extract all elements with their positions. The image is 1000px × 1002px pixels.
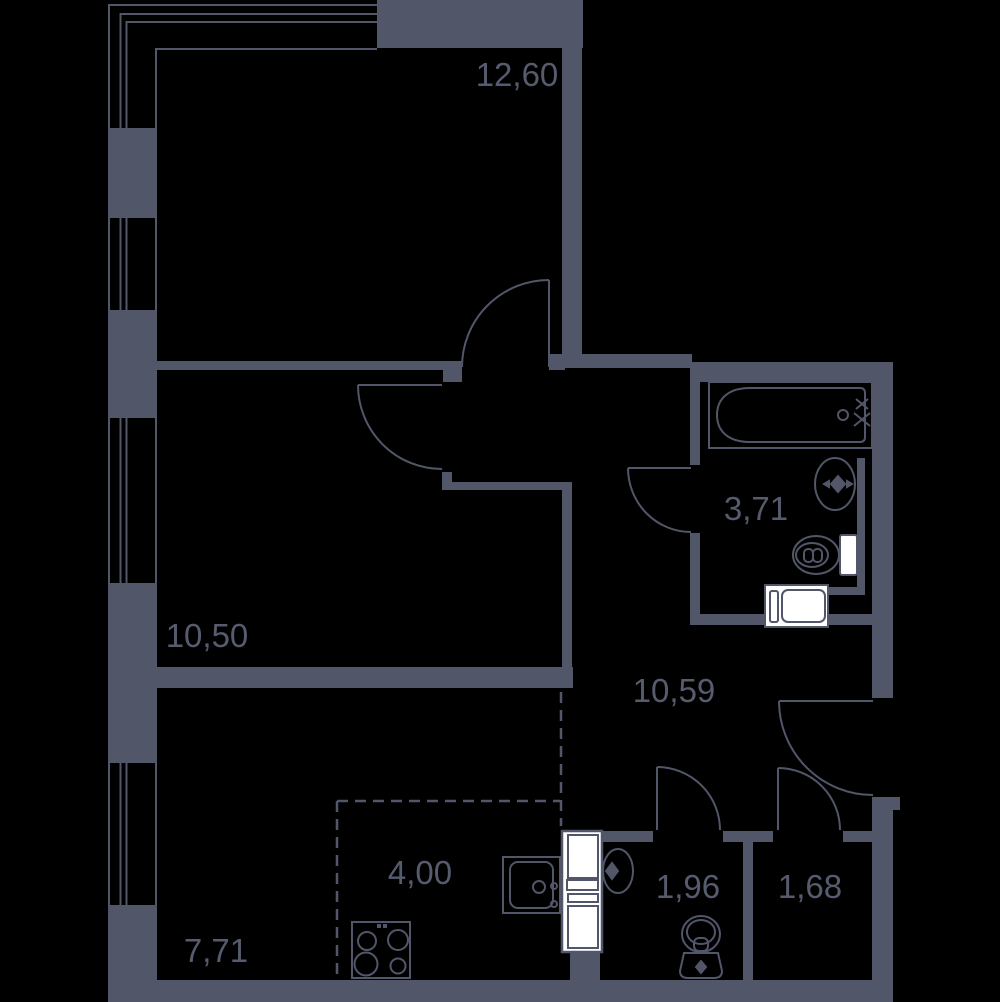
room-label-10-59: 10,59 [633, 672, 716, 709]
door-room-middle [358, 385, 442, 469]
room-label-3-71: 3,71 [724, 490, 788, 527]
bathtub-icon [709, 382, 872, 448]
wall [843, 831, 872, 842]
wall [155, 667, 573, 688]
wall [690, 533, 700, 625]
wall [108, 583, 155, 763]
wall [893, 797, 900, 810]
wall [108, 905, 155, 1002]
stove-icon [352, 922, 410, 978]
wall [743, 838, 753, 980]
wall [570, 952, 600, 980]
door-wc [657, 767, 720, 830]
room-label-4-00: 4,00 [388, 854, 452, 891]
floor-plan: 12,60 10,50 3,71 10,59 4,00 7,71 1,96 1,… [0, 0, 1000, 1002]
wall [155, 980, 873, 1002]
wall [443, 370, 462, 382]
wc-toilet-icon [680, 916, 722, 978]
bathroom-sink-icon [815, 458, 855, 510]
kitchen-sink-icon [503, 857, 560, 913]
wall [562, 482, 572, 668]
wall [549, 360, 565, 370]
wall [108, 310, 155, 418]
room-label-1-68: 1,68 [778, 868, 842, 905]
wall [377, 0, 583, 48]
wall [442, 472, 452, 482]
wall [828, 587, 865, 595]
wall [872, 382, 893, 698]
wc-sink-icon [603, 849, 633, 893]
wall [562, 48, 582, 355]
door-storage [778, 768, 840, 830]
washing-machine-icon [765, 585, 828, 627]
wall [108, 128, 155, 218]
door-bathroom [628, 468, 691, 532]
wall [549, 354, 692, 368]
wall [692, 362, 893, 382]
room-label-1-96: 1,96 [656, 868, 720, 905]
wall [690, 368, 700, 465]
room-label-12-60: 12,60 [476, 56, 559, 93]
ventilation-shaft-icon [562, 831, 602, 952]
door-room-top [462, 280, 549, 367]
wall [857, 458, 865, 595]
bathroom-toilet-icon [793, 535, 857, 575]
wall [154, 361, 462, 370]
door-entrance [779, 701, 873, 795]
kitchen-zone-dashed-boundary [337, 692, 561, 978]
room-label-7-71: 7,71 [184, 932, 248, 969]
wall [442, 482, 572, 490]
wall [601, 831, 653, 842]
room-label-10-50: 10,50 [166, 617, 249, 654]
wall [872, 797, 893, 1002]
